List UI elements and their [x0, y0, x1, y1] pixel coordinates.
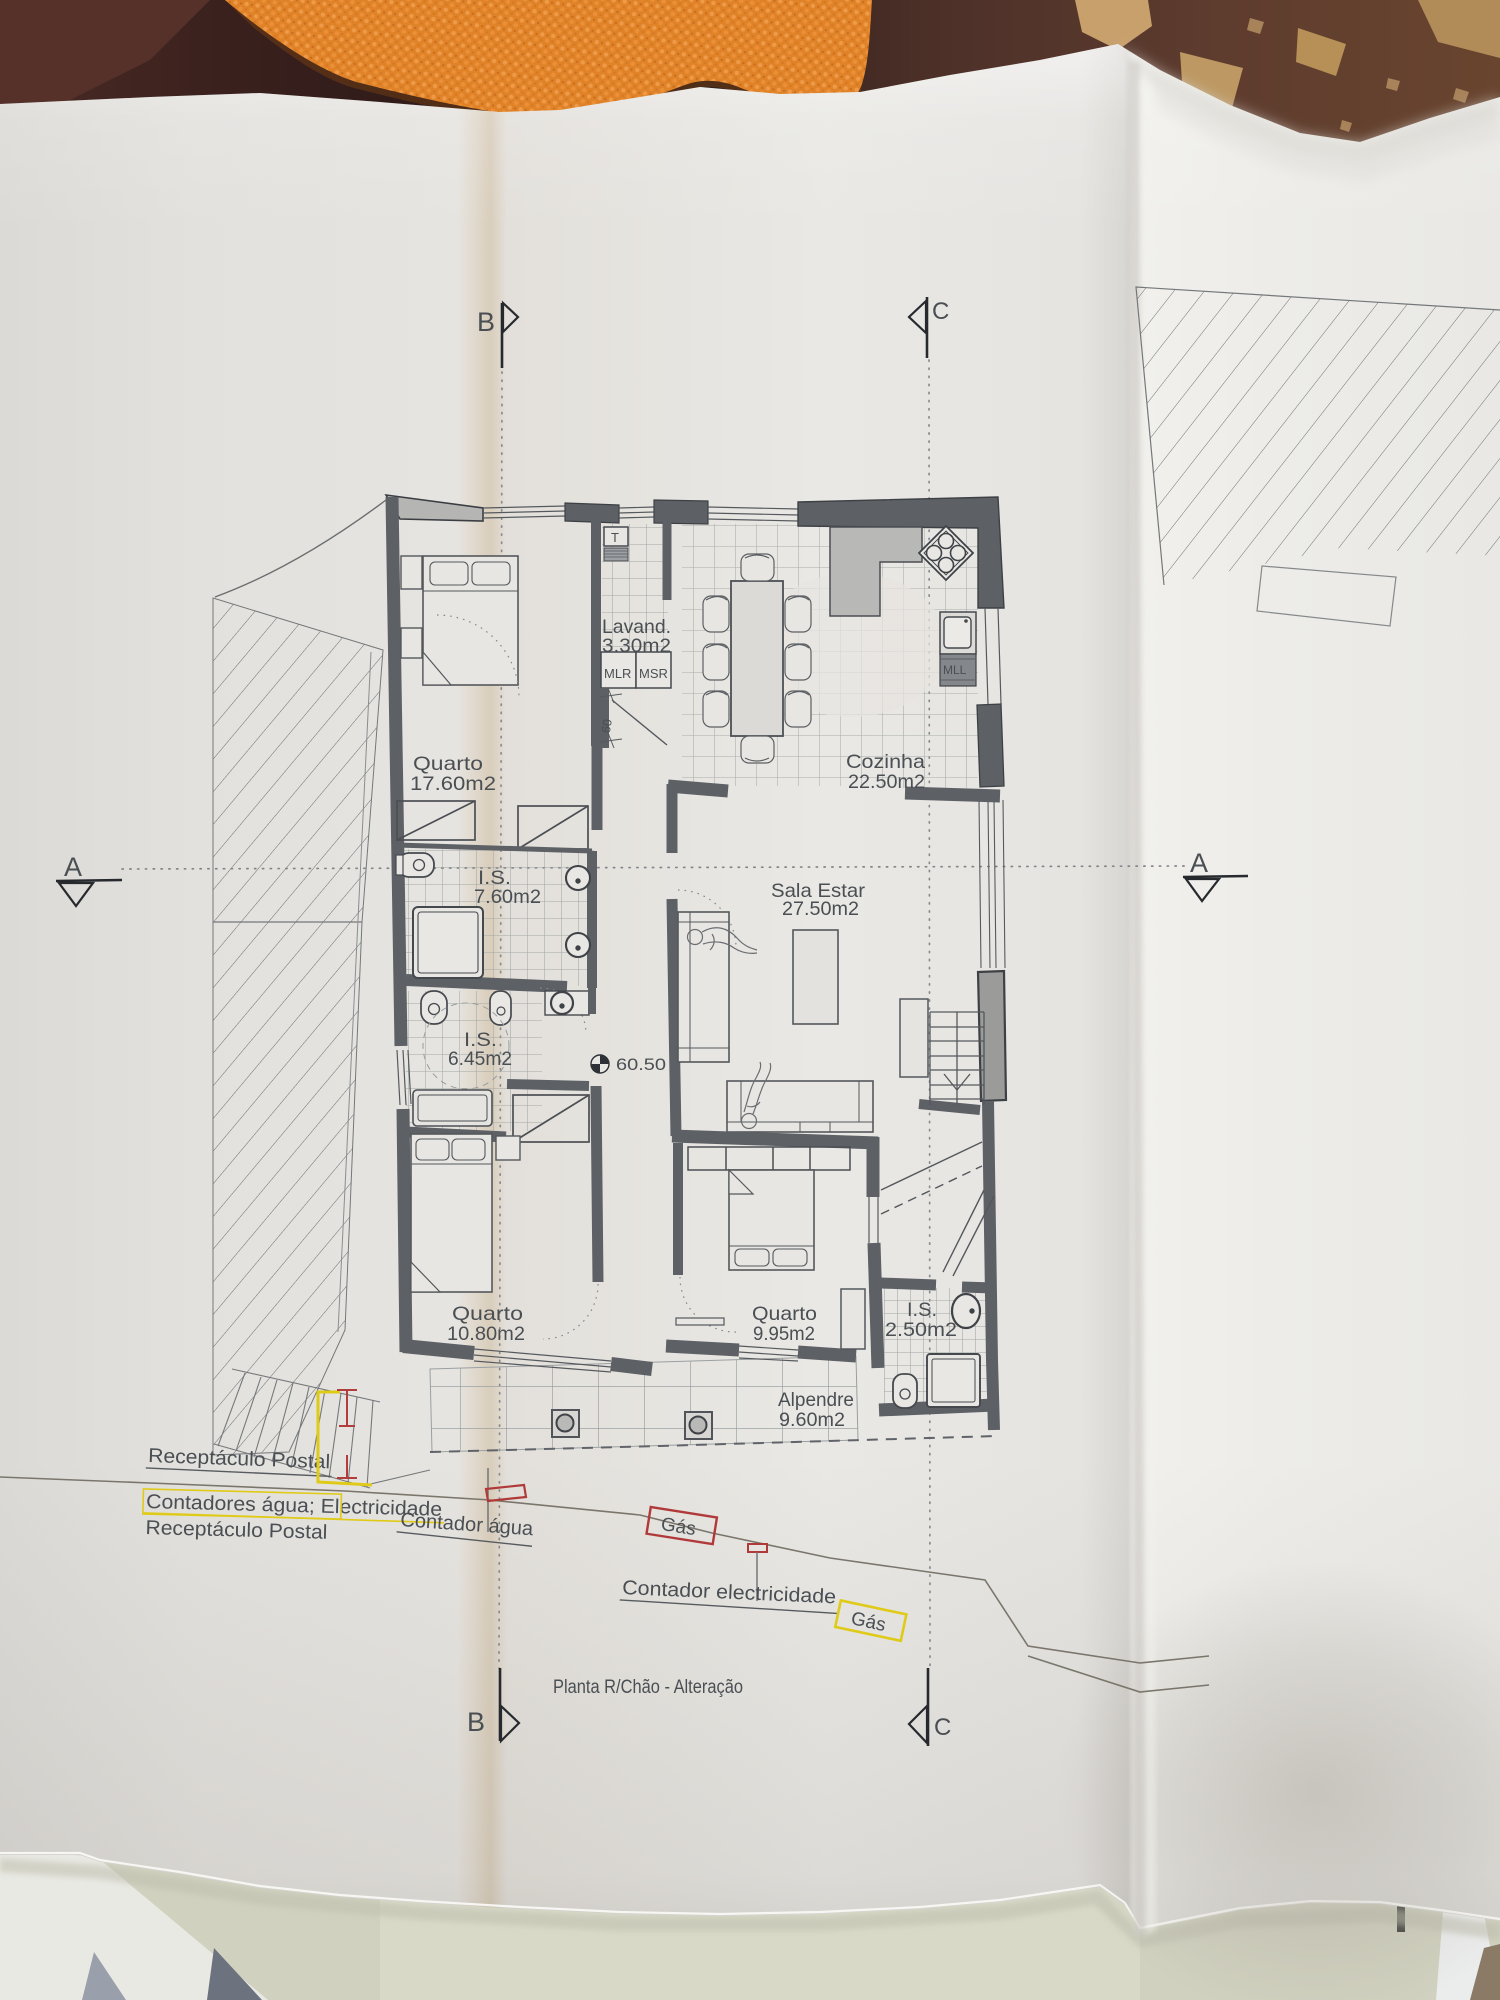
svg-text:Planta R/Chão - Alteração: Planta R/Chão - Alteração	[553, 1677, 743, 1698]
svg-text:B: B	[477, 307, 495, 337]
svg-text:9.60m2: 9.60m2	[779, 1409, 845, 1431]
svg-text:7.60m2: 7.60m2	[474, 886, 541, 908]
svg-text:I.S.: I.S.	[907, 1299, 937, 1321]
svg-text:T: T	[611, 530, 619, 545]
svg-text:Alpendre: Alpendre	[778, 1389, 854, 1411]
svg-text:A: A	[1190, 848, 1208, 878]
svg-text:2.50m2: 2.50m2	[885, 1319, 957, 1341]
svg-text:Quarto: Quarto	[452, 1303, 523, 1325]
svg-text:Quarto: Quarto	[413, 753, 483, 775]
svg-text:A: A	[64, 852, 82, 882]
svg-text:.60: .60	[598, 718, 615, 738]
svg-text:27.50m2: 27.50m2	[782, 898, 859, 920]
svg-text:MLR: MLR	[604, 666, 631, 681]
svg-text:C: C	[932, 298, 949, 325]
svg-text:6.45m2: 6.45m2	[448, 1048, 512, 1070]
svg-text:22.50m2: 22.50m2	[848, 771, 925, 793]
svg-text:MSR: MSR	[639, 666, 668, 681]
svg-text:60.50: 60.50	[616, 1055, 666, 1074]
svg-text:9.95m2: 9.95m2	[753, 1323, 815, 1345]
svg-text:C: C	[934, 1714, 951, 1741]
svg-text:17.60m2: 17.60m2	[410, 773, 496, 795]
svg-text:MLL: MLL	[943, 663, 967, 677]
svg-text:Cozinha: Cozinha	[846, 751, 925, 773]
svg-text:10.80m2: 10.80m2	[447, 1323, 525, 1345]
svg-text:Quarto: Quarto	[752, 1303, 817, 1325]
svg-text:3.30m2: 3.30m2	[602, 635, 671, 657]
svg-text:B: B	[467, 1707, 485, 1737]
